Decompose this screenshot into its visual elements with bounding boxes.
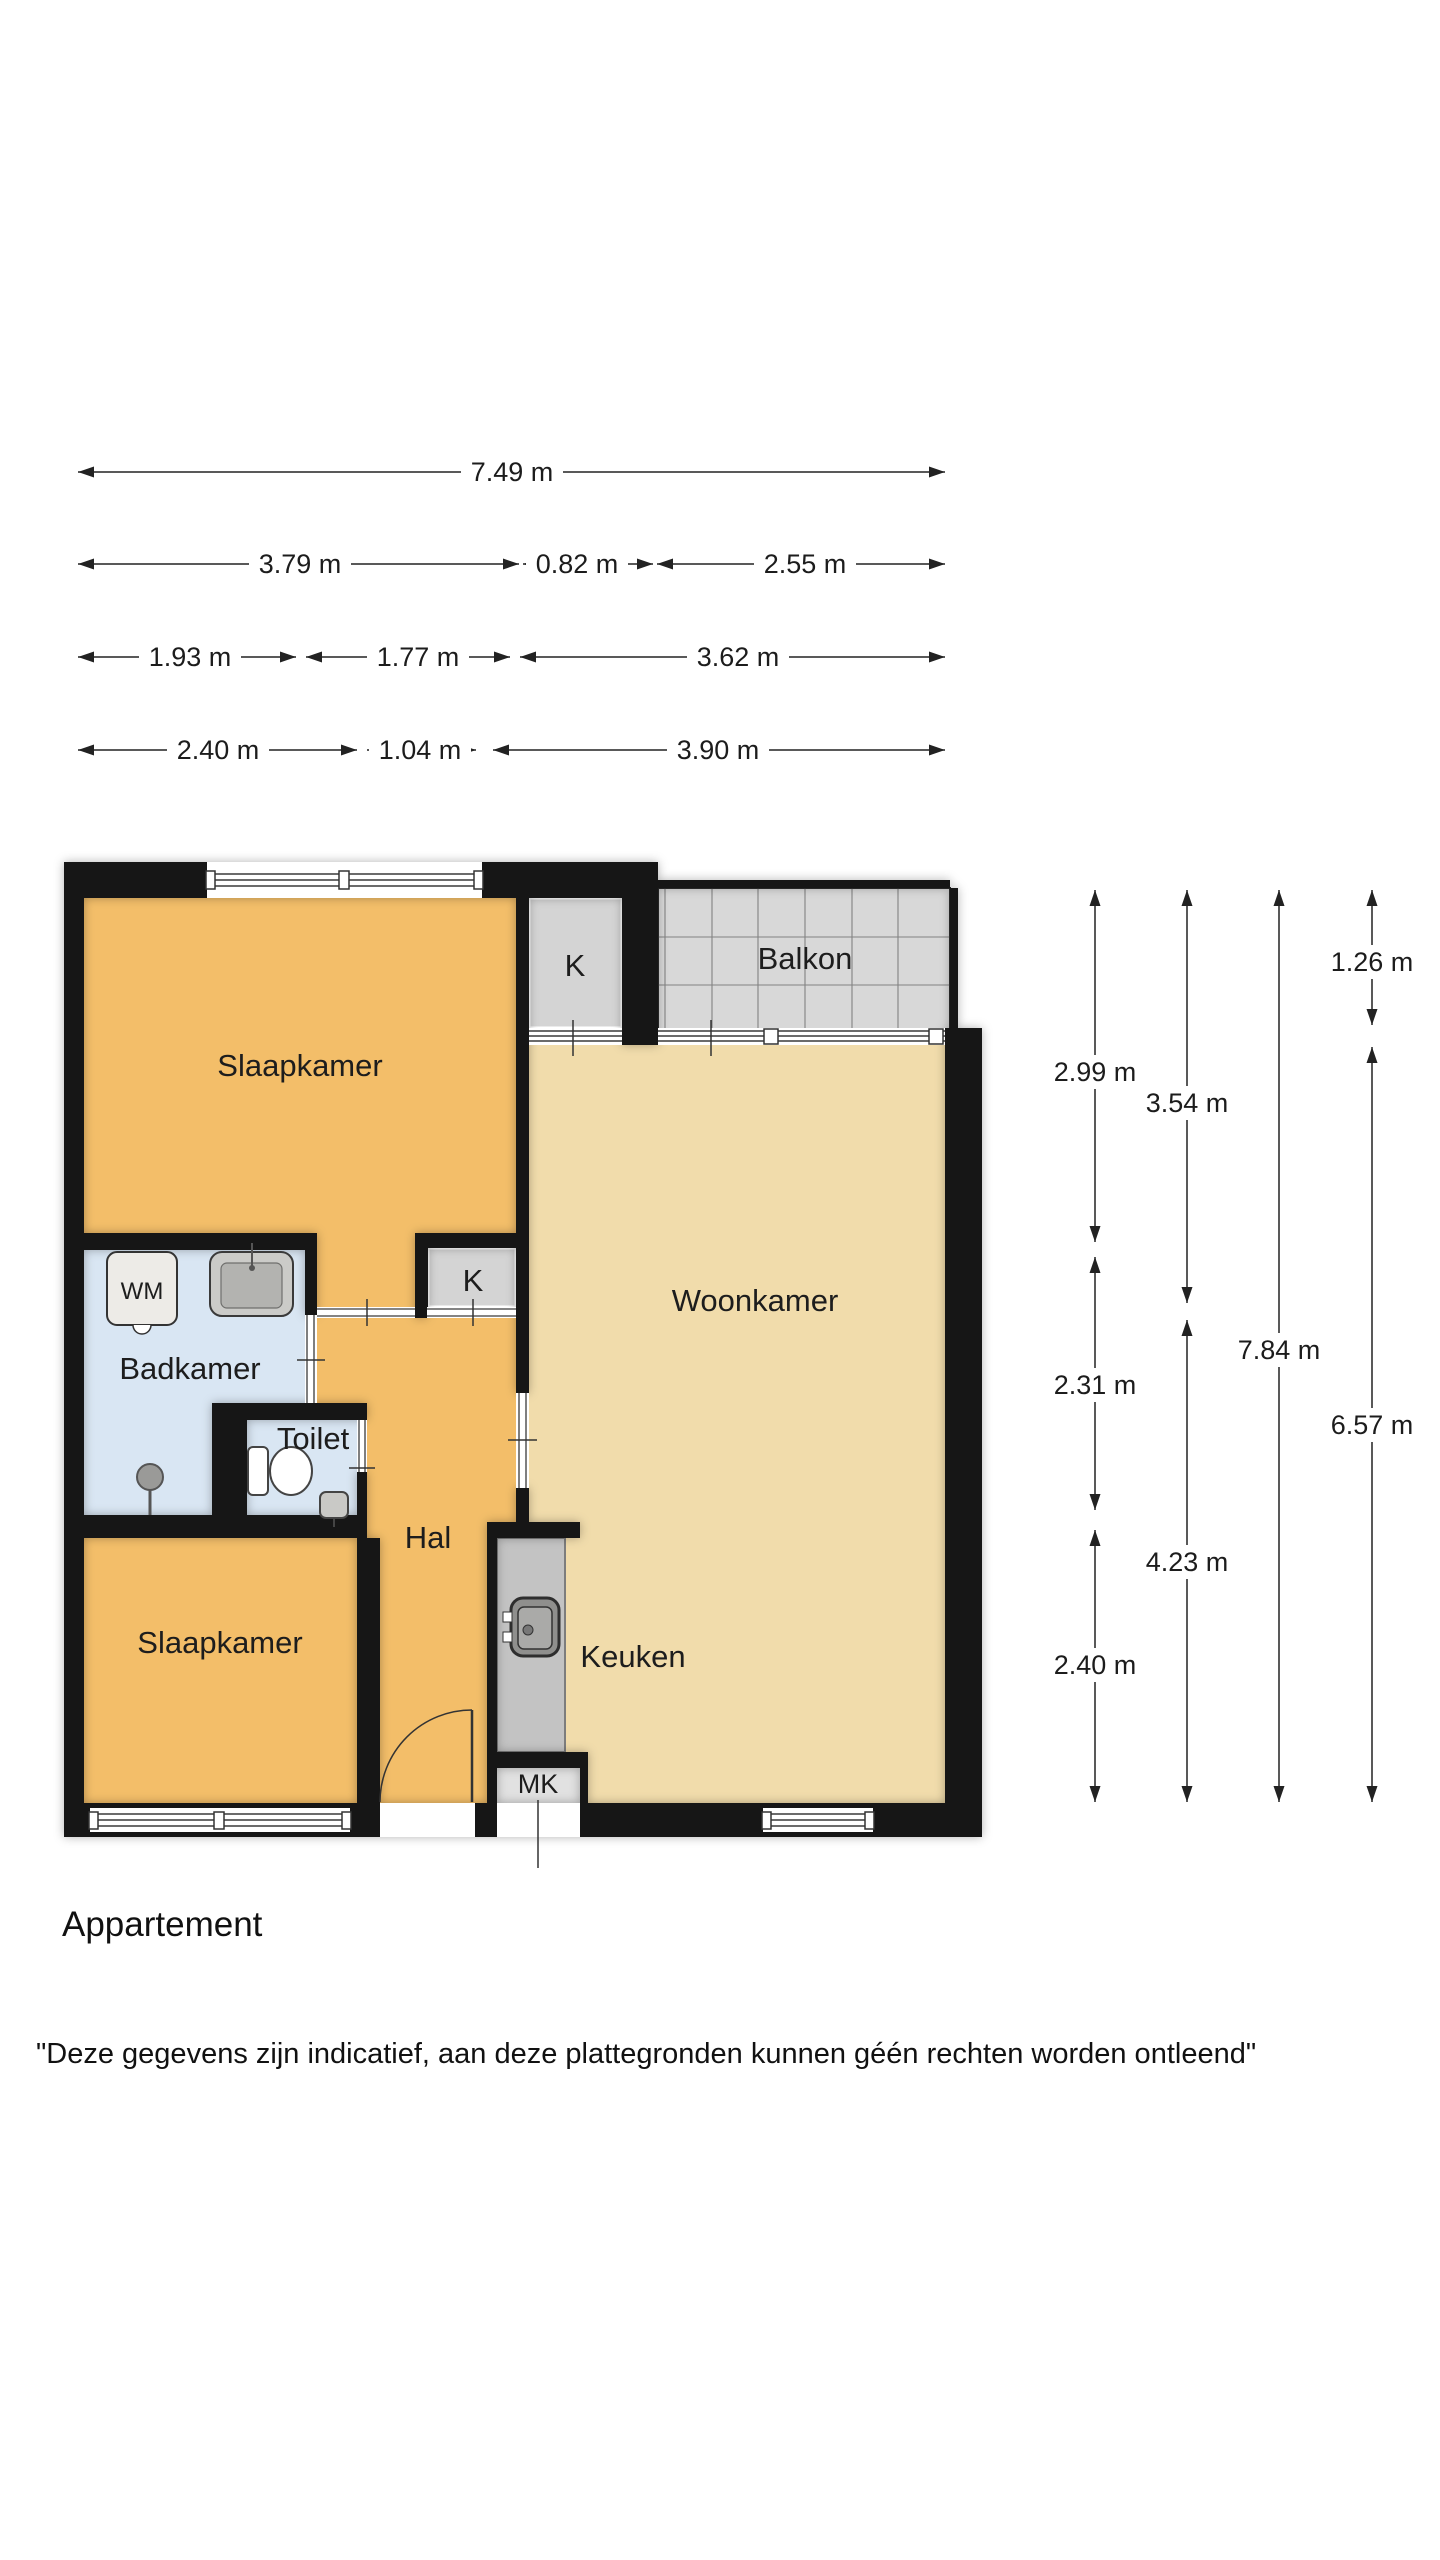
label-closet-top: K — [565, 948, 586, 983]
dimension-arrow — [929, 559, 945, 570]
dimension-arrow — [78, 652, 94, 663]
dimension-label: 2.31 m — [1054, 1370, 1137, 1400]
dimension-arrow — [1090, 890, 1101, 906]
dimension-label: 7.49 m — [471, 457, 554, 487]
meterkast-opening — [497, 1800, 580, 1868]
dimension-label: 2.40 m — [1054, 1650, 1137, 1680]
label-keuken: Keuken — [580, 1639, 685, 1674]
kitchen-sink-icon — [503, 1598, 559, 1656]
dimension-label: 2.40 m — [177, 735, 260, 765]
label-balkon: Balkon — [758, 941, 853, 976]
window-top — [206, 862, 483, 898]
dimension-label: 3.62 m — [697, 642, 780, 672]
label-closet-hal: K — [463, 1263, 484, 1298]
dimension-arrow — [306, 652, 322, 663]
floorplan-svg: Slaapkamer K Balkon Woonkamer Badkamer K… — [0, 0, 1440, 2560]
dimension-label: 1.04 m — [379, 735, 462, 765]
bathroom-sink-icon — [210, 1243, 293, 1316]
label-toilet: Toilet — [277, 1421, 350, 1456]
dimension-arrow — [503, 559, 519, 570]
label-hal: Hal — [405, 1520, 452, 1555]
label-slaapkamer-2: Slaapkamer — [137, 1625, 302, 1660]
dimension-label: 0.82 m — [536, 549, 619, 579]
plan-title: Appartement — [62, 1905, 262, 1945]
room-woonkamer-keuken-floor — [529, 1028, 945, 1803]
dimension-arrow — [1090, 1226, 1101, 1242]
dimension-arrow — [929, 652, 945, 663]
label-meterkast: MK — [518, 1769, 559, 1799]
dimension-arrow — [1182, 1786, 1193, 1802]
dimension-arrow — [1367, 1047, 1378, 1063]
label-slaapkamer-1: Slaapkamer — [217, 1048, 382, 1083]
dimension-arrow — [1182, 890, 1193, 906]
dimension-arrow — [1182, 1287, 1193, 1303]
dimension-label: 2.99 m — [1054, 1057, 1137, 1087]
dimension-arrow — [520, 652, 536, 663]
dimension-arrow — [1090, 1786, 1101, 1802]
dimension-arrow — [657, 559, 673, 570]
window-slaapkamer2 — [89, 1808, 351, 1832]
dimension-label: 4.23 m — [1146, 1547, 1229, 1577]
dimension-label: 3.90 m — [677, 735, 760, 765]
dimension-arrow — [929, 745, 945, 756]
dimension-arrow — [1182, 1320, 1193, 1336]
dimension-label: 3.79 m — [259, 549, 342, 579]
dimension-arrow — [341, 745, 357, 756]
dimension-arrow — [494, 652, 510, 663]
dimension-arrow — [1090, 1494, 1101, 1510]
dimension-arrow — [493, 745, 509, 756]
dimension-arrow — [1274, 890, 1285, 906]
dimension-arrow — [929, 467, 945, 478]
label-badkamer: Badkamer — [119, 1351, 260, 1386]
dimension-arrow — [78, 745, 94, 756]
disclaimer-text: "Deze gegevens zijn indicatief, aan deze… — [36, 2038, 1256, 2071]
dimension-label: 1.93 m — [149, 642, 232, 672]
dimension-arrow — [1367, 1786, 1378, 1802]
label-wasmachine: WM — [121, 1278, 164, 1305]
dimension-arrow — [637, 559, 653, 570]
dimension-label: 7.84 m — [1238, 1335, 1321, 1365]
dimension-arrow — [78, 467, 94, 478]
dimension-arrow — [1090, 1530, 1101, 1546]
dimension-label: 1.77 m — [377, 642, 460, 672]
dimension-label: 6.57 m — [1331, 1410, 1414, 1440]
dimension-arrow — [78, 559, 94, 570]
dimension-label: 1.26 m — [1331, 947, 1414, 977]
label-woonkamer: Woonkamer — [672, 1283, 839, 1318]
dimension-arrow — [1367, 1009, 1378, 1025]
dimension-label: 3.54 m — [1146, 1088, 1229, 1118]
dimension-arrow — [280, 652, 296, 663]
dimension-label: 2.55 m — [764, 549, 847, 579]
floorplan-page: Slaapkamer K Balkon Woonkamer Badkamer K… — [0, 0, 1440, 2560]
window-keuken — [762, 1808, 874, 1832]
dimension-arrow — [1367, 890, 1378, 906]
dimension-arrow — [1090, 1257, 1101, 1273]
dimension-arrow — [1274, 1786, 1285, 1802]
